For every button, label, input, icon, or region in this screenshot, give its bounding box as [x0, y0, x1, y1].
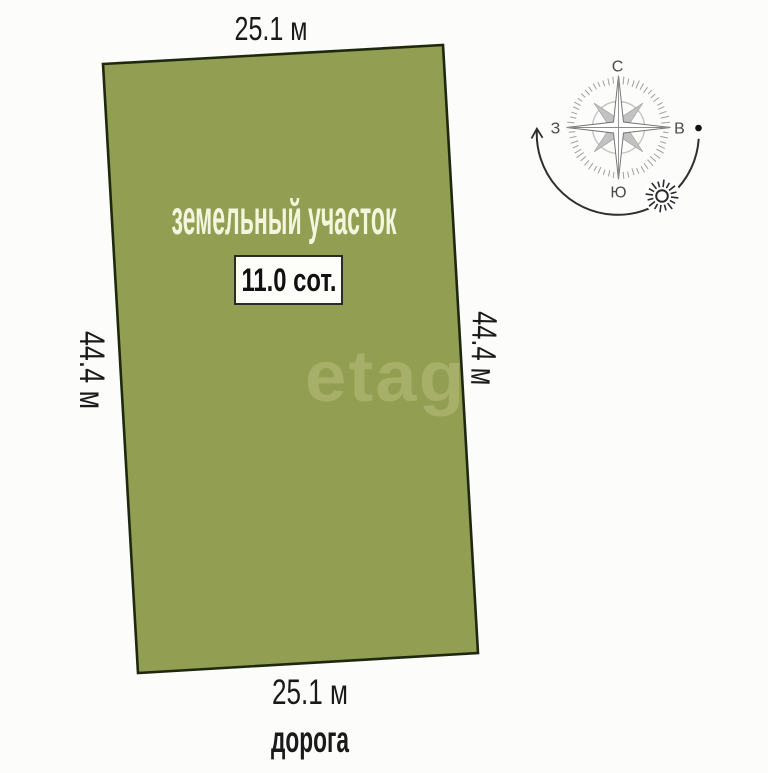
- svg-text:11.0 сот.: 11.0 сот.: [242, 262, 337, 298]
- svg-text:Ю: Ю: [610, 185, 626, 202]
- svg-text:25.1 м: 25.1 м: [235, 10, 308, 47]
- svg-text:44.4 м: 44.4 м: [72, 331, 111, 409]
- svg-text:С: С: [612, 59, 624, 76]
- svg-text:25.1 м: 25.1 м: [272, 673, 348, 712]
- svg-text:З: З: [551, 121, 561, 138]
- svg-text:44.4 м: 44.4 м: [463, 311, 504, 386]
- svg-text:В: В: [674, 121, 685, 138]
- svg-text:земельный участок: земельный участок: [172, 192, 397, 245]
- svg-text:дорога: дорога: [271, 719, 349, 760]
